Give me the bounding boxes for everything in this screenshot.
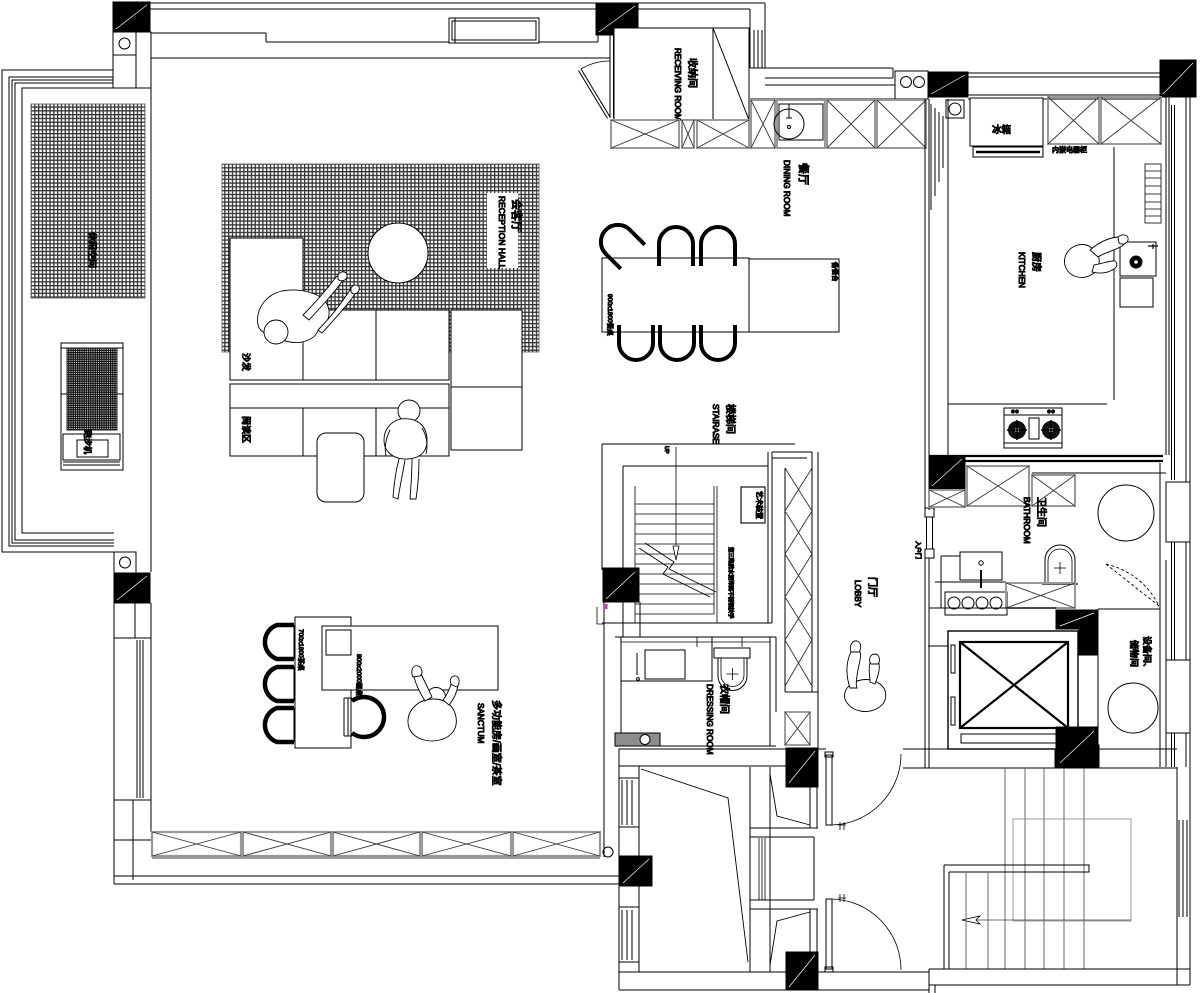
svg-text:阅读区: 阅读区: [241, 416, 252, 443]
svg-text:餐厅: 餐厅: [797, 163, 811, 185]
svg-text:多功能房/画室/茶室: 多功能房/画室/茶室: [490, 700, 503, 786]
svg-text:卫生间: 卫生间: [1035, 497, 1048, 527]
svg-text:备餐台: 备餐台: [831, 262, 840, 282]
svg-text:跑步机: 跑步机: [83, 430, 93, 454]
svg-text:BATHROOM: BATHROOM: [1022, 497, 1031, 544]
svg-text:DINING ROOM: DINING ROOM: [782, 160, 791, 217]
svg-text:入户门: 入户门: [914, 541, 922, 559]
svg-text:储物间: 储物间: [1129, 640, 1140, 667]
svg-text:收纳间: 收纳间: [686, 58, 699, 88]
svg-text:700x1800茶桌: 700x1800茶桌: [297, 629, 306, 671]
svg-text:900x1800餐桌: 900x1800餐桌: [606, 294, 615, 336]
svg-text:内嵌电器柜: 内嵌电器柜: [1052, 145, 1087, 154]
svg-text:STAIRASE: STAIRASE: [711, 404, 720, 444]
svg-text:会客厅: 会客厅: [510, 199, 524, 232]
svg-text:设备间、: 设备间、: [1142, 636, 1153, 672]
svg-text:门厅: 门厅: [866, 577, 879, 597]
svg-text:LOBBY: LOBBY: [853, 580, 862, 608]
svg-text:UP: UP: [663, 446, 669, 454]
svg-text:RECEPTION HALL: RECEPTION HALL: [497, 196, 506, 270]
svg-text:衣帽间: 衣帽间: [718, 684, 731, 714]
svg-text:沙发: 沙发: [241, 353, 252, 371]
svg-text:KITCHEN: KITCHEN: [1017, 252, 1026, 288]
svg-text:楼梯间: 楼梯间: [724, 404, 737, 434]
svg-text:SANCTUM: SANCTUM: [476, 703, 485, 744]
svg-text:艺术装置: 艺术装置: [755, 491, 764, 519]
svg-text:RECEIVING ROOM: RECEIVING ROOM: [673, 48, 682, 121]
svg-text:厨房: 厨房: [1030, 252, 1043, 272]
svg-text:800x2000画桌: 800x2000画桌: [355, 654, 364, 696]
svg-text:冰箱: 冰箱: [992, 124, 1011, 136]
svg-text:第三跑后水泥饰面不锈钢扶手: 第三跑后水泥饰面不锈钢扶手: [727, 547, 735, 619]
svg-text:休闲空间: 休闲空间: [87, 232, 98, 268]
svg-text:DRESSING ROOM: DRESSING ROOM: [705, 684, 714, 755]
